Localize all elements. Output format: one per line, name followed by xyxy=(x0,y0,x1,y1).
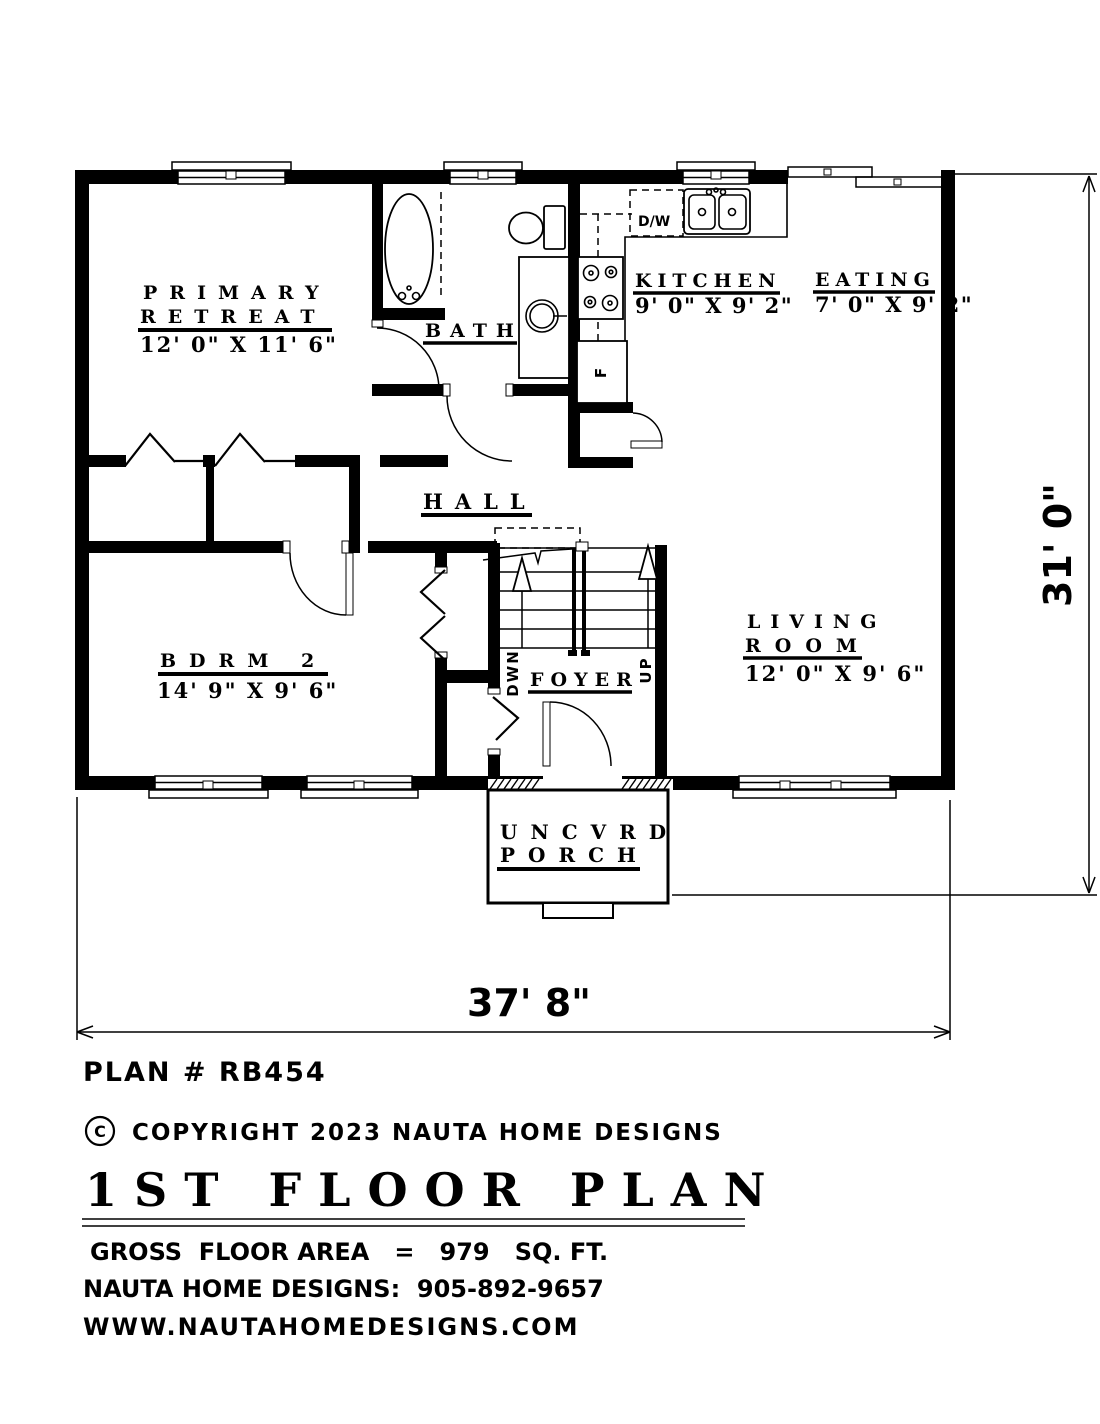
label-fridge: F xyxy=(592,368,610,378)
copyright-icon-letter: C xyxy=(94,1122,106,1141)
kitchen-door-swing xyxy=(633,413,662,442)
label-porch-line2: PORCH xyxy=(500,843,649,867)
bathtub xyxy=(385,194,433,304)
stove xyxy=(578,257,623,319)
label-eating-dims: 7' 0" X 9' 2" xyxy=(815,292,973,317)
kitchen-door-leaf xyxy=(631,441,662,448)
label-primary-line2: RETREAT xyxy=(140,306,327,328)
sheet-title: 1ST FLOOR PLAN xyxy=(85,1163,783,1217)
stair-overhead-dashed xyxy=(495,528,580,548)
patio-slider-door xyxy=(788,167,945,187)
label-bath: BATH xyxy=(425,320,523,342)
plan-number: PLAN # RB454 xyxy=(83,1057,327,1088)
stair-rail xyxy=(582,548,586,652)
label-kitchen: KITCHEN xyxy=(635,270,781,292)
bath-door-swing xyxy=(447,396,512,461)
window-living xyxy=(733,776,896,798)
label-foyer: FOYER xyxy=(530,669,639,691)
label-stairs-down: DWN xyxy=(504,649,522,697)
linen-closet-bifold-upper xyxy=(421,570,445,614)
dimension-height-label: 31' 0" xyxy=(1036,483,1080,607)
stair-up-arrow xyxy=(639,546,657,648)
label-porch-line1: UNCVRD xyxy=(500,820,679,844)
kitchen-sink xyxy=(684,188,750,234)
primary-closet-bifold-left xyxy=(125,434,175,466)
gross-area-line: GROSS FLOOR AREA = 979 SQ. FT. xyxy=(90,1238,608,1266)
window-kitchen xyxy=(677,162,755,184)
label-primary-dims: 12' 0" X 11' 6" xyxy=(140,332,338,357)
label-bdrm2: BDRM 2 xyxy=(160,650,327,672)
bath-fixtures xyxy=(385,192,569,378)
dimension-width-label: 37' 8" xyxy=(467,981,591,1025)
label-living-line1: LIVING xyxy=(747,611,886,633)
contact-line: NAUTA HOME DESIGNS: 905-892-9657 xyxy=(83,1275,604,1303)
toilet xyxy=(509,206,565,249)
label-primary-line1: PRIMARY xyxy=(143,282,331,304)
front-door-swing xyxy=(550,702,611,766)
porch-step xyxy=(543,903,613,918)
label-eating: EATING xyxy=(815,269,936,291)
bath-vanity xyxy=(519,257,569,378)
label-dishwasher: D/W xyxy=(638,214,670,230)
website-line: WWW.NAUTAHOMEDESIGNS.COM xyxy=(83,1313,579,1341)
title-block: PLAN # RB454 C COPYRIGHT 2023 NAUTA HOME… xyxy=(82,1057,783,1341)
window-bdrm2-left xyxy=(149,776,268,798)
bdrm2-door-swing xyxy=(290,553,346,615)
label-stairs-up: UP xyxy=(637,656,655,683)
bdrm2-door-leaf xyxy=(346,553,353,615)
window-bath xyxy=(444,162,522,184)
label-living-dims: 12' 0" X 9' 6" xyxy=(745,661,926,686)
window-primary xyxy=(172,162,291,184)
floor-plan-sheet: PRIMARY RETREAT 12' 0" X 11' 6" BATH KIT… xyxy=(0,0,1100,1424)
label-living-line2: ROOM xyxy=(745,635,871,657)
copyright-line: COPYRIGHT 2023 NAUTA HOME DESIGNS xyxy=(132,1120,723,1146)
front-door-leaf xyxy=(543,702,550,766)
foyer-closet-bifold xyxy=(493,697,518,740)
label-bdrm2-dims: 14' 9" X 9' 6" xyxy=(157,678,338,703)
label-hall: HALL xyxy=(423,489,537,514)
label-kitchen-dims: 9' 0" X 9' 2" xyxy=(635,293,793,318)
entry-threshold xyxy=(488,779,673,790)
window-bdrm2-right xyxy=(301,776,418,798)
primary-closet-bifold-right xyxy=(215,434,265,466)
stairs xyxy=(483,528,657,656)
floor-plan-drawing: PRIMARY RETREAT 12' 0" X 11' 6" BATH KIT… xyxy=(0,0,1100,1424)
stair-rail xyxy=(572,548,576,652)
